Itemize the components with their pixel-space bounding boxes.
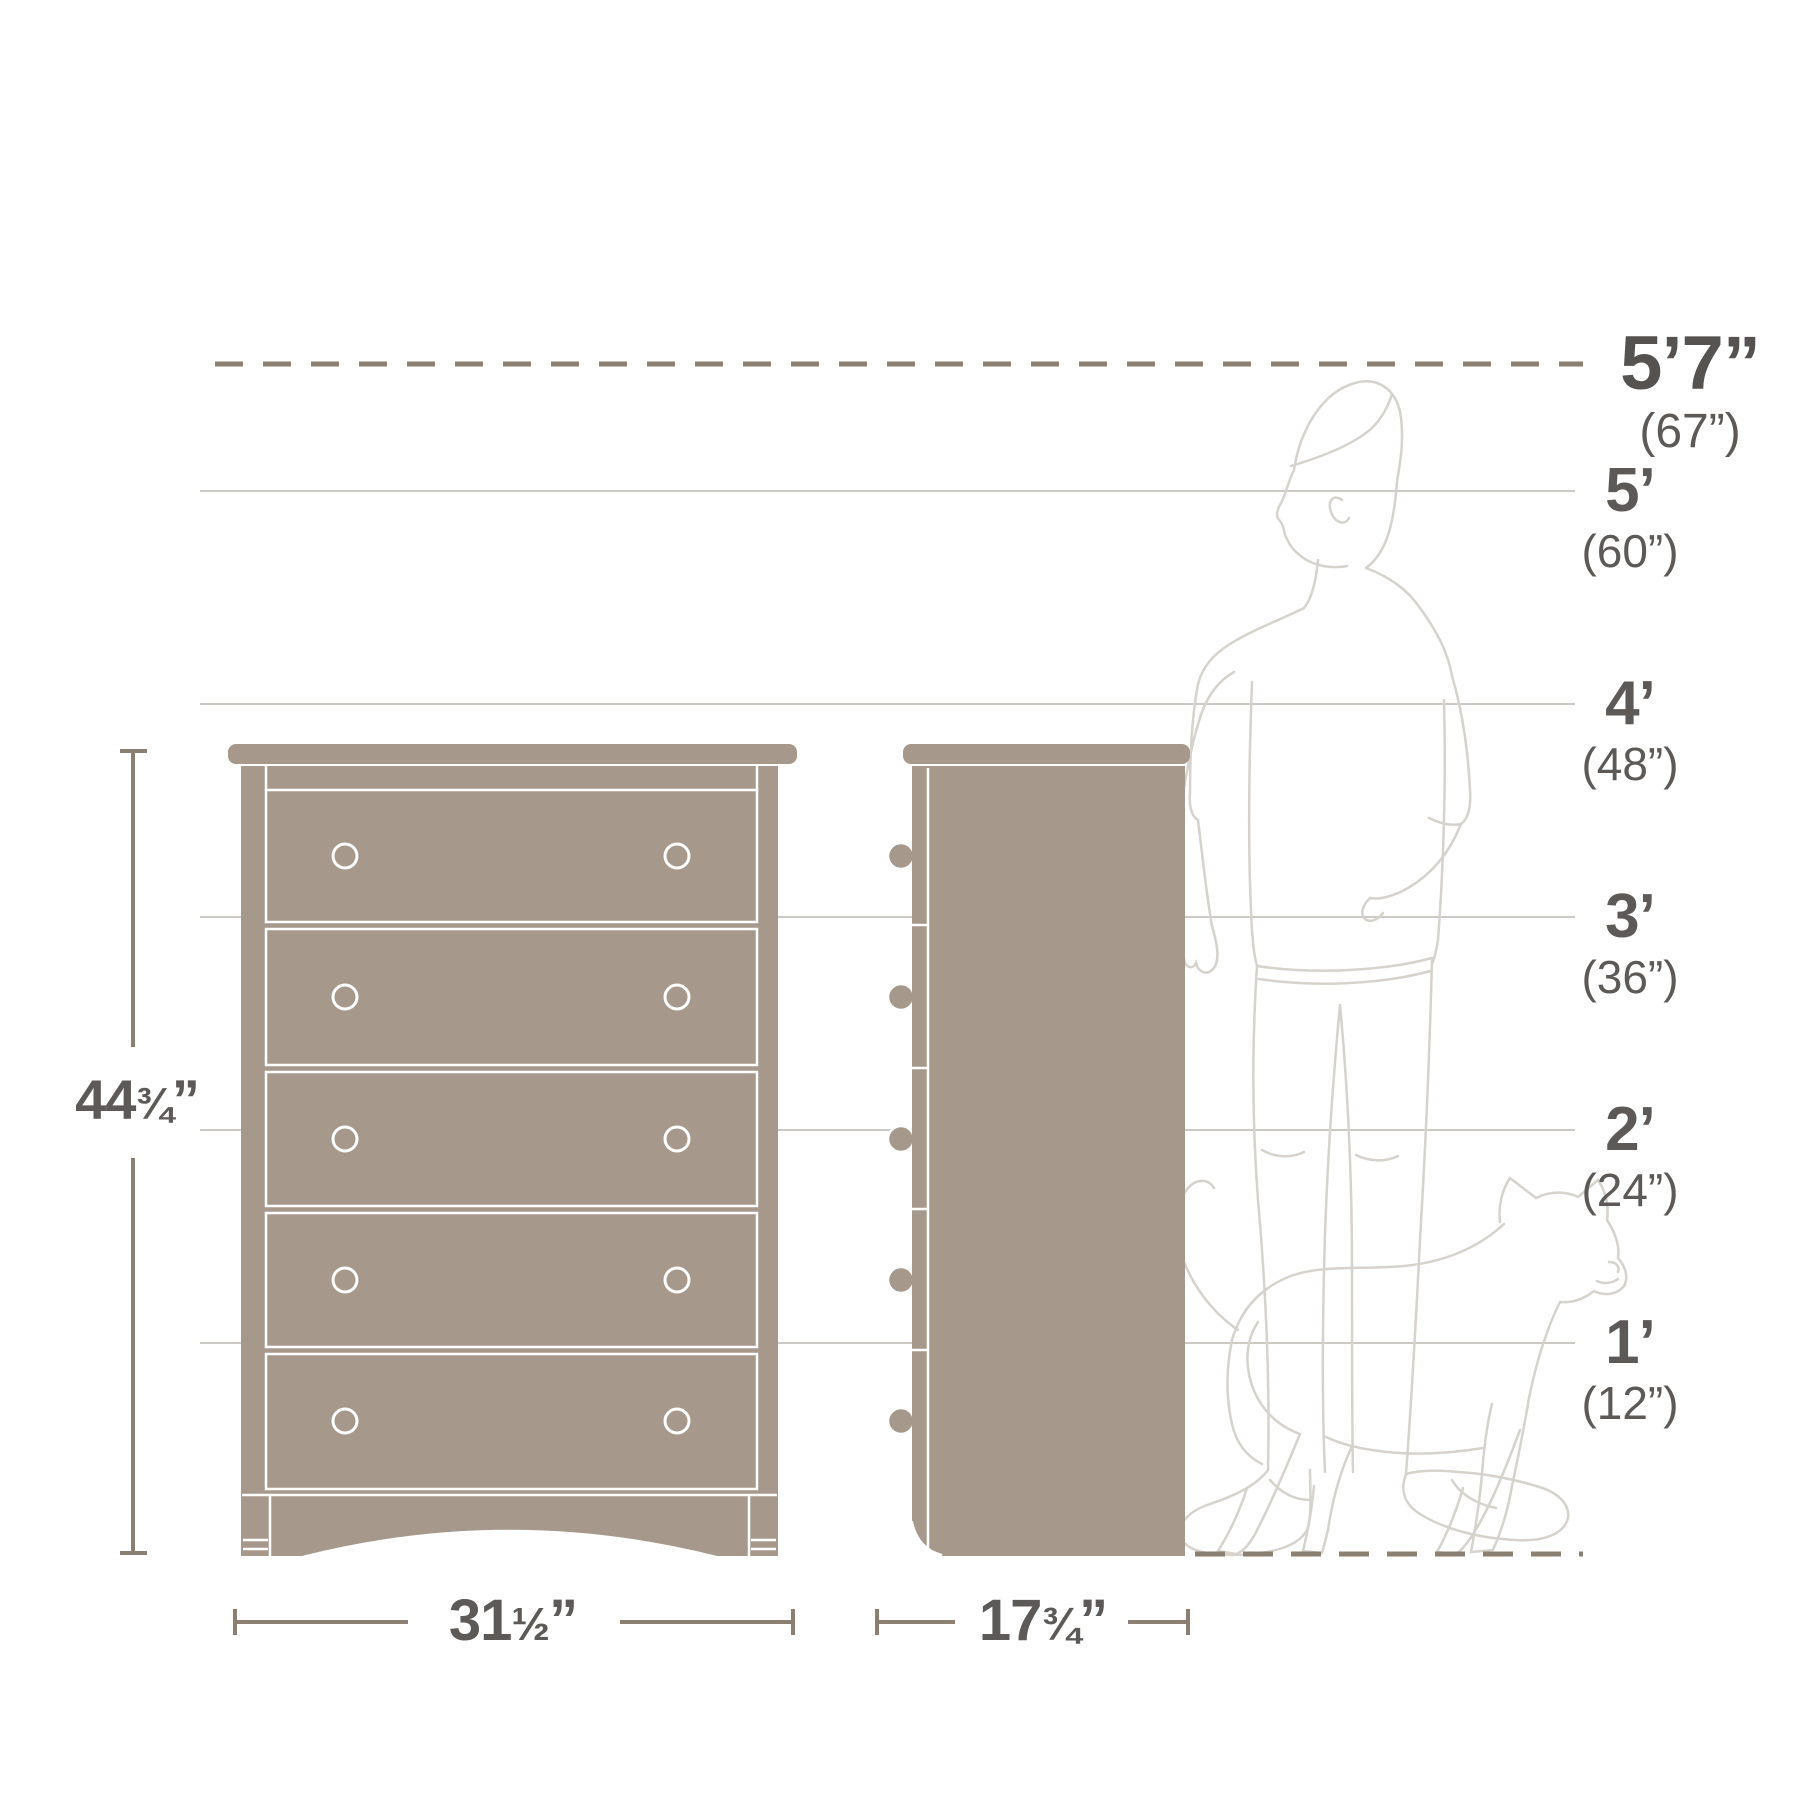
height-marker-2ft: 2’ (24”) [1545, 1099, 1715, 1215]
height-marker-1ft: 1’ (12”) [1545, 1312, 1715, 1428]
diagram-artwork [0, 0, 1800, 1800]
dimension-diagram: 5’7” (67”) 5’ (60”) 4’ (48”) 3’ (36”) 2’… [0, 0, 1800, 1800]
depth-unit: ” [1079, 1588, 1107, 1653]
drawer-knob [665, 985, 689, 1009]
drawer-knob [333, 844, 357, 868]
depth-dimension-label: 17¾” [925, 1591, 1161, 1654]
width-unit: ” [549, 1588, 577, 1653]
drawer-knob [333, 985, 357, 1009]
height-marker-sublabel: (60”) [1545, 526, 1715, 576]
height-marker-label: 5’ [1545, 460, 1715, 522]
side-body [912, 766, 1185, 1556]
drawer-knob [333, 1409, 357, 1433]
height-marker-sublabel: (36”) [1545, 952, 1715, 1002]
height-marker-label: 5’7” [1580, 326, 1800, 402]
drawer-knob [665, 1268, 689, 1292]
drawer-knob [665, 844, 689, 868]
height-value: 44 [75, 1068, 135, 1131]
depth-fraction: ¾ [1041, 1598, 1079, 1650]
height-marker-5ft: 5’ (60”) [1545, 460, 1715, 576]
height-dimension-label: 44¾” [12, 1071, 262, 1133]
height-dimension-line [120, 751, 147, 1553]
height-marker-label: 1’ [1545, 1312, 1715, 1374]
depth-value: 17 [979, 1588, 1042, 1653]
height-marker-label: 2’ [1545, 1099, 1715, 1161]
width-value: 31 [449, 1588, 512, 1653]
chest-front-view [228, 744, 797, 1557]
height-marker-label: 3’ [1545, 886, 1715, 948]
height-marker-3ft: 3’ (36”) [1545, 886, 1715, 1002]
height-marker-sublabel: (24”) [1545, 1165, 1715, 1215]
height-marker-5ft7: 5’7” (67”) [1580, 326, 1800, 458]
width-dimension-label: 31½” [395, 1591, 631, 1654]
height-unit: ” [172, 1068, 199, 1131]
drawer-knob [665, 1409, 689, 1433]
height-fraction: ¾ [135, 1079, 171, 1129]
height-marker-sublabel: (12”) [1545, 1378, 1715, 1428]
drawer-knob [665, 1127, 689, 1151]
height-marker-sublabel: (67”) [1580, 406, 1800, 458]
drawer-knob [333, 1127, 357, 1151]
drawer-knob [333, 1268, 357, 1292]
height-marker-label: 4’ [1545, 673, 1715, 735]
chest-side-view [888, 744, 1190, 1557]
side-top-board [903, 744, 1190, 764]
height-marker-4ft: 4’ (48”) [1545, 673, 1715, 789]
front-top-board [228, 744, 797, 764]
height-marker-sublabel: (48”) [1545, 739, 1715, 789]
width-fraction: ½ [511, 1598, 549, 1650]
